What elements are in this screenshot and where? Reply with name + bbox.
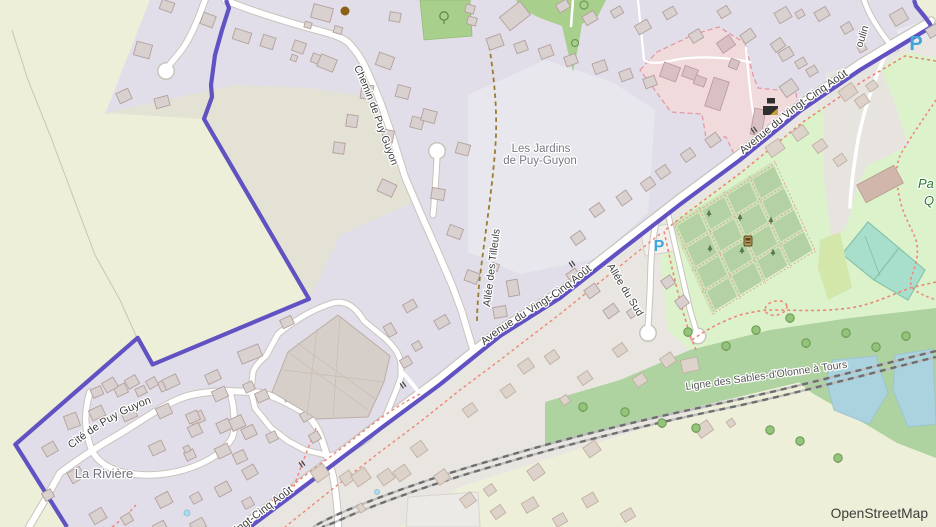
- svg-text:Pa: Pa: [918, 176, 934, 191]
- svg-text:Les Jardins: Les Jardins: [512, 143, 571, 155]
- svg-text:de Puy-Guyon: de Puy-Guyon: [503, 155, 577, 167]
- svg-text:OpenStreetMap: OpenStreetMap: [831, 506, 929, 521]
- svg-text:P: P: [654, 238, 665, 255]
- svg-text:P: P: [909, 33, 922, 55]
- svg-text:La Rivière: La Rivière: [75, 466, 134, 481]
- svg-text:Q: Q: [924, 193, 934, 208]
